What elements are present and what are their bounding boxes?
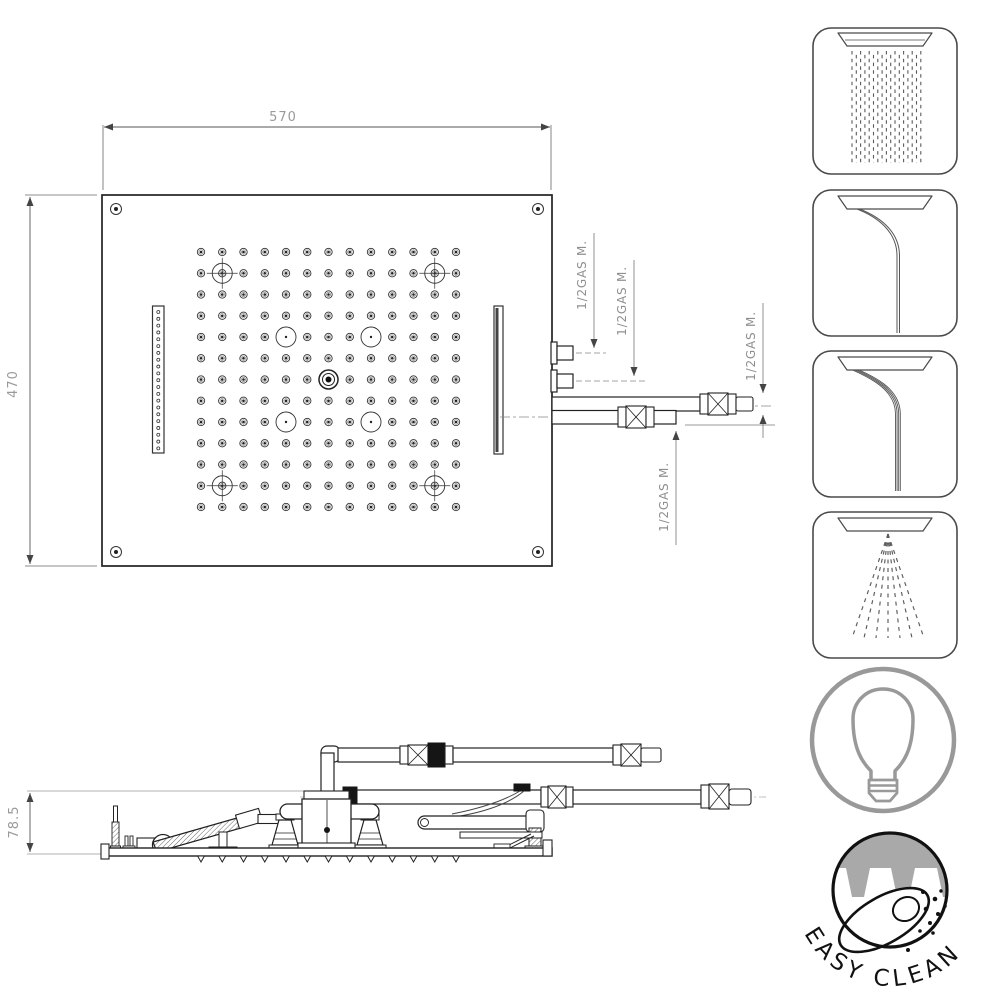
dimension-width: 570 (103, 110, 551, 190)
spray-mode-icons (813, 28, 957, 658)
dim-570-label: 570 (269, 110, 297, 125)
rain-mode-icon (813, 28, 957, 174)
gas-label-4: 1/2GAS M. (657, 462, 671, 532)
top-view: 570 470 (6, 110, 775, 566)
gas-label-3: 1/2GAS M. (744, 311, 758, 381)
mist-slot (153, 306, 165, 453)
waterfall-mode-icon (813, 190, 957, 336)
mist-mode-icon (813, 512, 957, 658)
gas-label-2: 1/2GAS M. (615, 266, 629, 336)
connection-labels: 1/2GAS M. 1/2GAS M. 1/2GAS M. 1/2GAS M. (575, 233, 775, 545)
gas-label-1: 1/2GAS M. (575, 240, 589, 310)
dimension-height: 470 (6, 195, 97, 566)
finger-icon (829, 875, 939, 965)
dim-785-label: 78.5 (7, 806, 22, 839)
easy-clean-badge: EASY CLEAN (799, 820, 967, 992)
upper-hose (321, 743, 661, 795)
cascade-mode-icon (813, 351, 957, 497)
led-light-icon (812, 669, 954, 811)
shower-head-technical-drawing: 570 470 (0, 0, 1000, 1000)
waterfall-slot (494, 306, 503, 454)
plate-nozzles (198, 856, 460, 862)
side-view: 78.5 (7, 743, 766, 862)
dim-470-label: 470 (6, 370, 21, 398)
inlet-fittings (551, 342, 573, 392)
